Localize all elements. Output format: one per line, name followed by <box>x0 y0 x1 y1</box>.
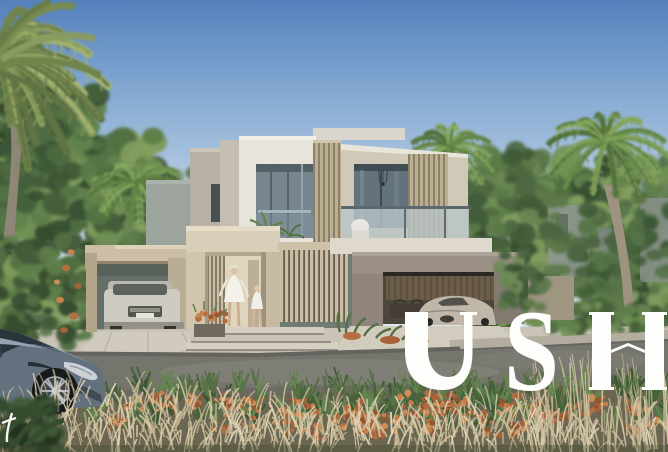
svg-text:S: S <box>504 287 559 416</box>
